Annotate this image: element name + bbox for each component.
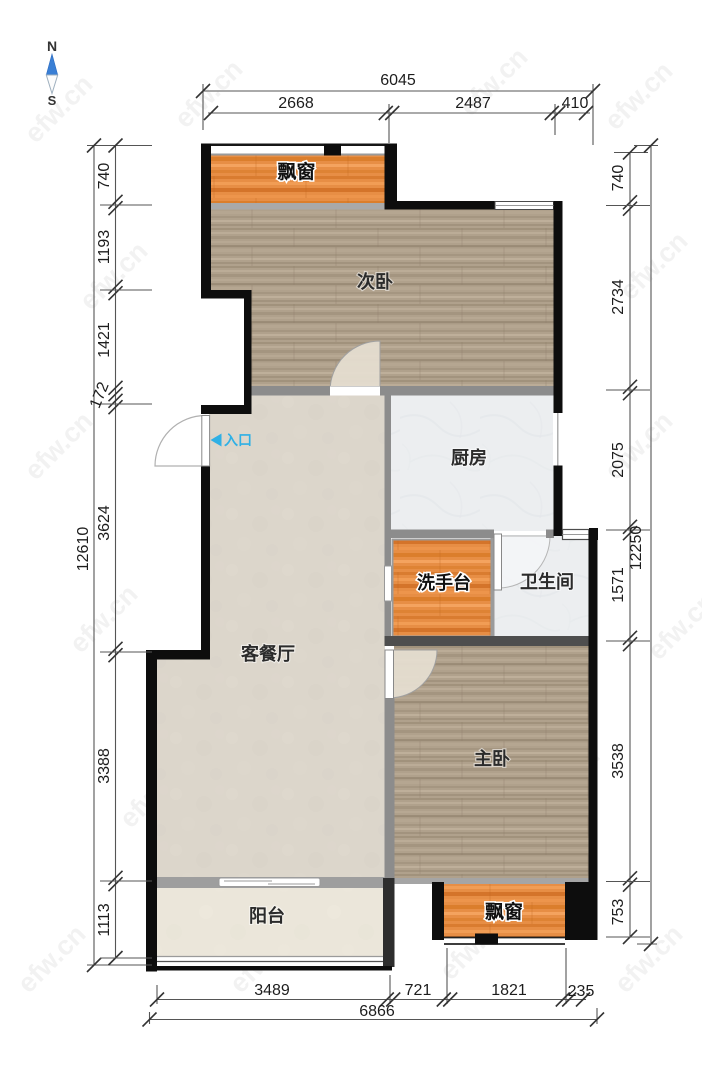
- svg-text:12250: 12250: [628, 526, 645, 571]
- svg-text:721: 721: [405, 982, 432, 999]
- svg-text:客餐厅: 客餐厅: [241, 643, 295, 664]
- svg-text:厨房: 厨房: [451, 447, 487, 468]
- svg-text:410: 410: [562, 95, 589, 112]
- svg-text:卫生间: 卫生间: [520, 571, 574, 592]
- svg-text:12610: 12610: [75, 527, 92, 572]
- svg-text:1571: 1571: [610, 567, 627, 603]
- svg-text:6866: 6866: [359, 1003, 395, 1020]
- svg-text:235: 235: [568, 983, 595, 1000]
- svg-text:3538: 3538: [610, 743, 627, 779]
- svg-text:2734: 2734: [610, 279, 627, 315]
- svg-text:3388: 3388: [96, 748, 113, 784]
- svg-text:主卧: 主卧: [474, 748, 510, 769]
- svg-text:次卧: 次卧: [357, 271, 393, 292]
- svg-text:阳台: 阳台: [249, 905, 285, 926]
- svg-text:6045: 6045: [380, 72, 416, 89]
- svg-text:N: N: [47, 38, 57, 54]
- svg-text:740: 740: [610, 165, 627, 192]
- svg-text:洗手台: 洗手台: [417, 572, 471, 593]
- svg-text:2075: 2075: [610, 442, 627, 478]
- svg-text:753: 753: [610, 899, 627, 926]
- svg-text:1193: 1193: [96, 230, 113, 265]
- svg-text:3489: 3489: [254, 982, 290, 999]
- svg-text:S: S: [48, 93, 57, 108]
- svg-text:1113: 1113: [96, 903, 113, 936]
- svg-text:2668: 2668: [278, 95, 314, 112]
- svg-text:1821: 1821: [491, 982, 527, 999]
- svg-text:2487: 2487: [455, 95, 491, 112]
- svg-text:740: 740: [96, 163, 113, 190]
- svg-text:飘窗: 飘窗: [277, 160, 315, 183]
- svg-text:1421: 1421: [96, 322, 113, 358]
- svg-text:入口: 入口: [224, 432, 252, 448]
- svg-text:飘窗: 飘窗: [485, 900, 523, 923]
- svg-text:3624: 3624: [96, 505, 113, 541]
